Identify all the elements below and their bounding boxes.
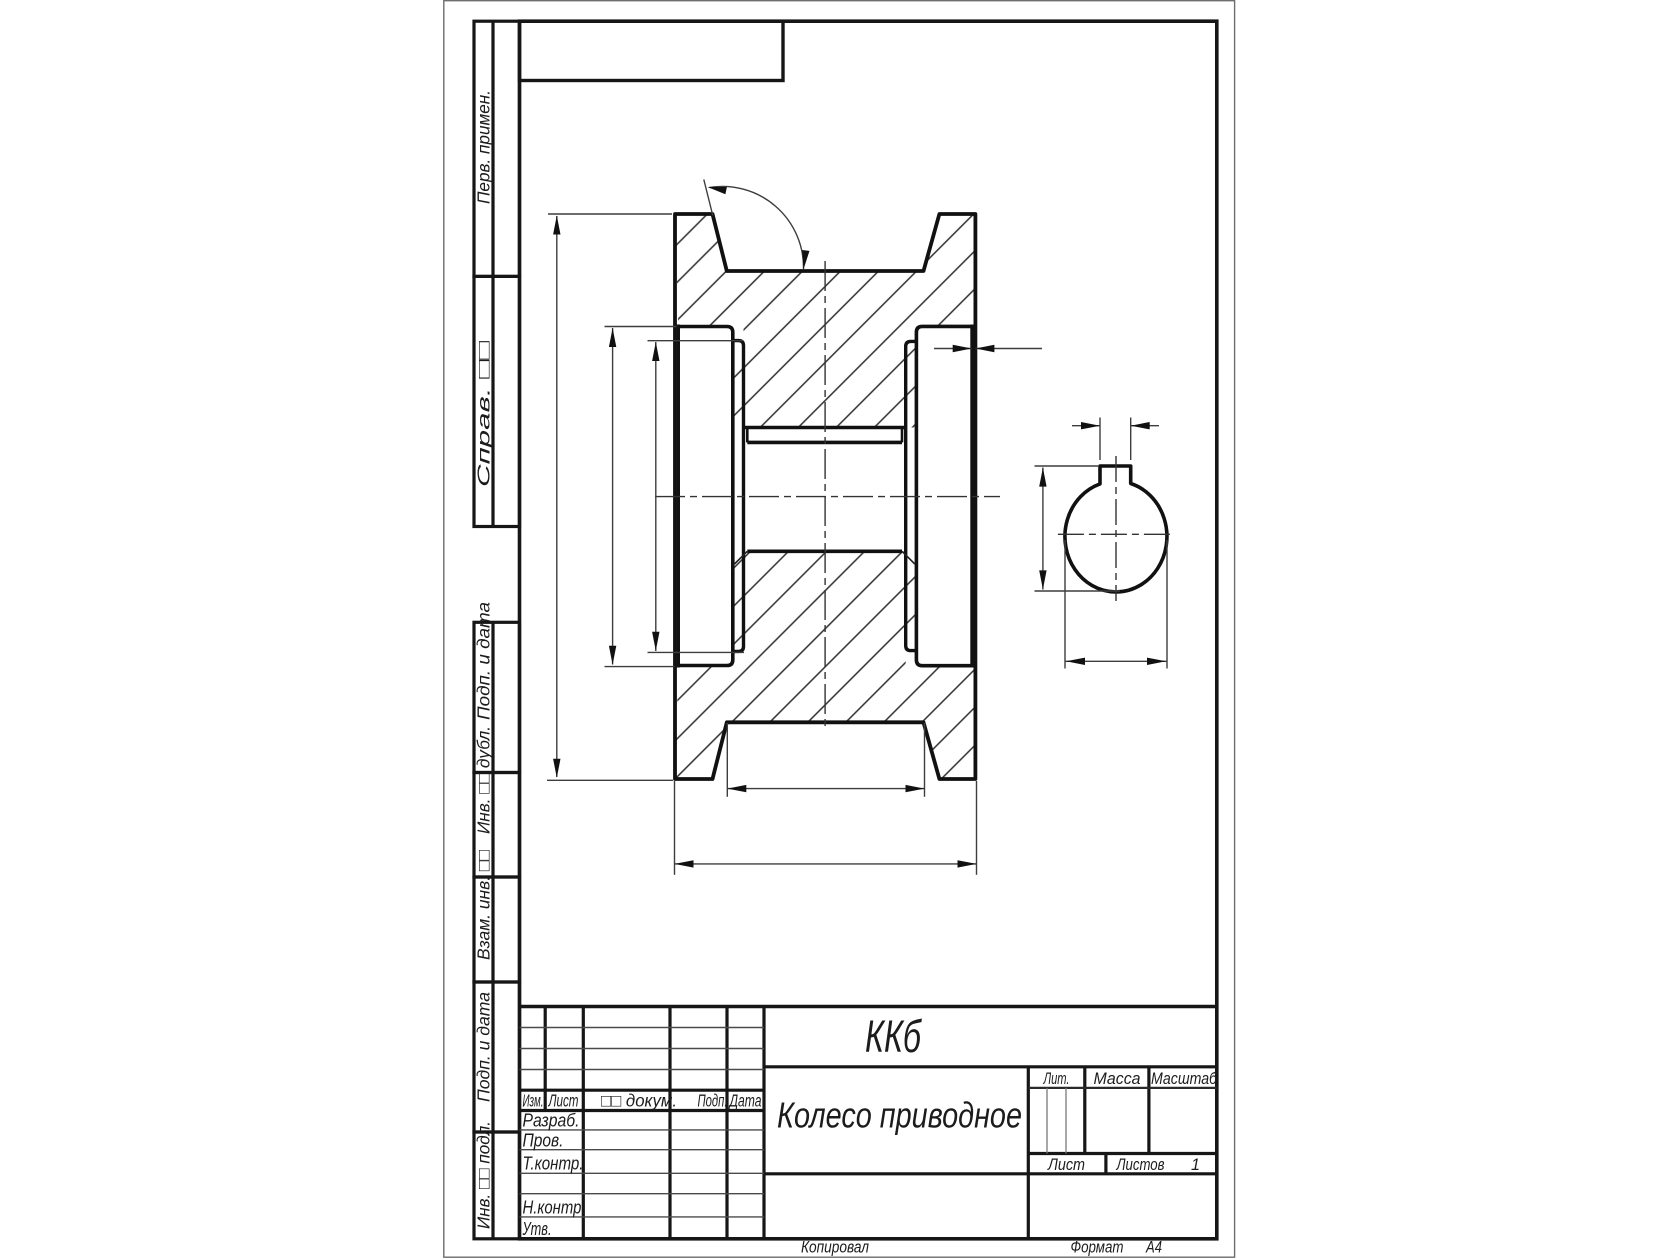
svg-text:Лит.: Лит. [1043,1070,1070,1088]
svg-text:1: 1 [1191,1156,1200,1174]
svg-text:□□ докум.: □□ докум. [601,1091,677,1111]
svg-text:Подп.: Подп. [698,1091,728,1111]
svg-text:Копировал: Копировал [801,1239,869,1257]
svg-text:Справ. □□: Справ. □□ [474,340,494,487]
svg-text:Инв. □□ дубл.: Инв. □□ дубл. [474,726,494,834]
svg-text:Подп. и дата: Подп. и дата [474,992,494,1102]
svg-text:Подп. и дата: Подп. и дата [474,602,494,720]
svg-text:Формат: Формат [1071,1239,1124,1257]
svg-text:Лист: Лист [1047,1156,1085,1174]
svg-text:Перв. примен.: Перв. примен. [474,90,494,204]
svg-text:Инв. □□ подл.: Инв. □□ подл. [474,1121,494,1229]
svg-text:Масса: Масса [1094,1070,1141,1088]
svg-text:Изм.: Изм. [523,1091,544,1111]
svg-text:Листов: Листов [1116,1156,1165,1174]
svg-text:Колесо приводное: Колесо приводное [777,1095,1022,1136]
svg-text:ККб: ККб [865,1011,922,1062]
svg-text:Т.контр.: Т.контр. [523,1154,584,1174]
svg-text:Масштаб: Масштаб [1151,1070,1218,1088]
svg-text:Взам. инв. □□: Взам. инв. □□ [474,850,494,960]
svg-text:Разраб.: Разраб. [523,1111,580,1131]
svg-text:Утв.: Утв. [522,1219,552,1239]
svg-text:Дата: Дата [728,1091,762,1111]
svg-text:Н.контр.: Н.контр. [523,1198,586,1218]
svg-text:Пров.: Пров. [523,1131,564,1151]
svg-text:А4: А4 [1145,1239,1162,1257]
svg-text:Лист: Лист [548,1091,579,1111]
